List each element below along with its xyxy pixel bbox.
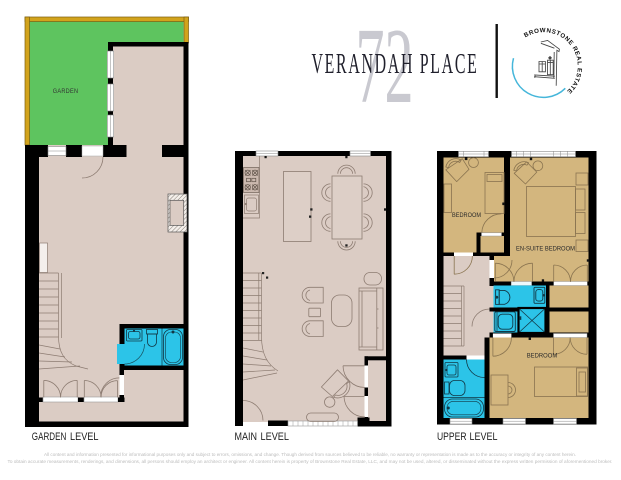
svg-text:To obtain accurate measurement: To obtain accurate measurements, renderi…: [8, 459, 613, 464]
svg-text:EN-SUITE BEDROOM: EN-SUITE BEDROOM: [516, 246, 575, 253]
svg-text:GARDENLEVEL: GARDENLEVEL: [32, 431, 99, 443]
svg-text:All content and information pr: All content and information presented fo…: [44, 452, 576, 457]
svg-text:BEDROOM: BEDROOM: [527, 353, 558, 360]
svg-text:MAINLEVEL: MAINLEVEL: [235, 431, 290, 443]
svg-text:UPPERLEVEL: UPPERLEVEL: [437, 431, 498, 443]
svg-text:BEDROOM: BEDROOM: [452, 212, 481, 219]
svg-text:GARDEN: GARDEN: [53, 88, 79, 95]
svg-text:VERANDAH PLACE: VERANDAH PLACE: [312, 49, 479, 80]
